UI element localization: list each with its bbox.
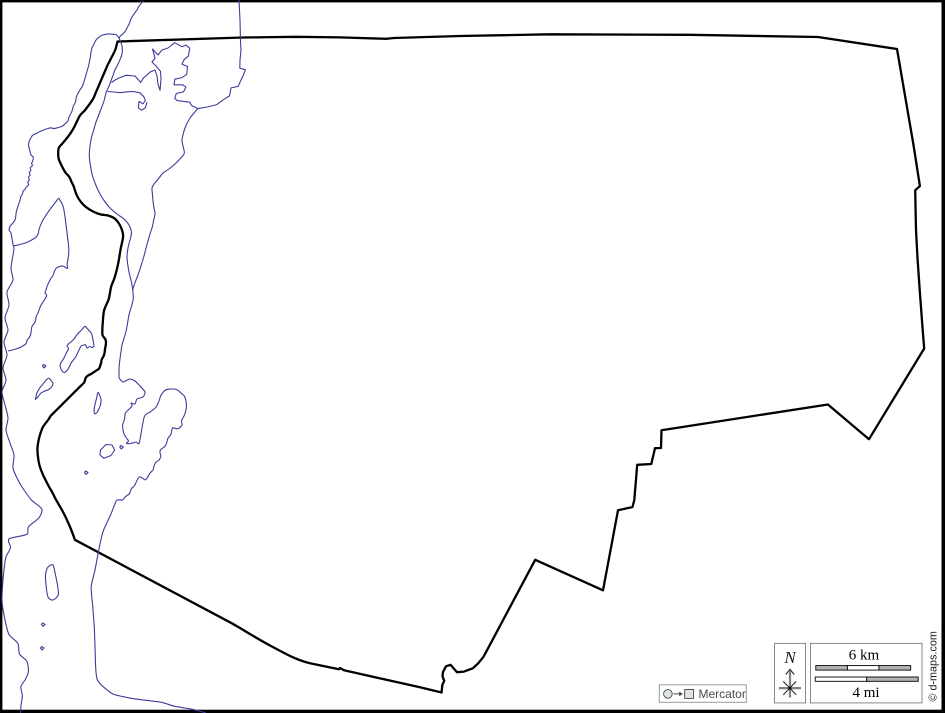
svg-text:Mercator: Mercator: [699, 687, 746, 701]
svg-text:6 km: 6 km: [849, 648, 880, 664]
svg-text:© d-maps.com: © d-maps.com: [928, 631, 940, 701]
svg-text:N: N: [783, 648, 797, 667]
svg-text:4 mi: 4 mi: [852, 685, 879, 701]
